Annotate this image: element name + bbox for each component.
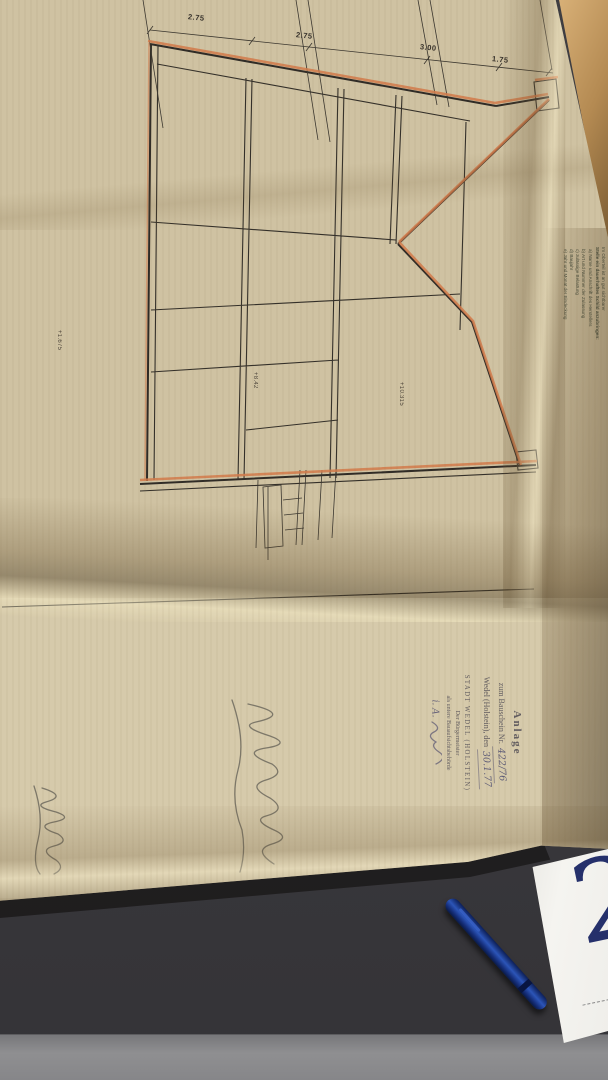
approval-signature: i. A. <box>427 658 442 808</box>
stamp-ref-label: zum Bauschein Nr. <box>498 683 507 744</box>
notes-item: a) Name und Anschrift des Herstellers <box>586 249 592 353</box>
notes-heading: Im Oberteil ist an gut sichtbarer <box>600 247 606 353</box>
card-numeral: 2 <box>562 838 608 962</box>
bauschein-stamp: Anlage zum Bauschein Nr. 422/76 Wedel (H… <box>395 658 525 808</box>
stamp-authority: als untere Bauaufsichtsbehörde <box>444 658 452 808</box>
notes-item: e) Jahr und Monat der Eindeckung <box>562 249 568 353</box>
architect-signature <box>28 782 72 882</box>
stamp-place-label: Wedel (Holstein), den <box>482 677 491 747</box>
photo-of-plan-on-desk: 2.75 2.75 3.00 1.75 +1.675 +8.42 +10.315… <box>0 0 608 1080</box>
dimension-label: 1.75 <box>492 54 509 65</box>
ink-thick <box>140 44 549 484</box>
notes-item: c) zulässige Belastung <box>574 249 580 353</box>
stamp-date-value: 30.1.77 <box>477 749 494 790</box>
fold-crease <box>503 0 565 608</box>
ink-thin <box>143 0 553 560</box>
accent-orange-thin <box>145 43 149 480</box>
elevation-label: +8.42 <box>252 372 258 389</box>
pen-clip <box>458 908 480 932</box>
stamp-ref-value: 422/76 <box>492 745 509 783</box>
dimension-label: 2.75 <box>296 30 313 41</box>
notes-item: b) Art und Nummer der Zulassung <box>580 249 586 353</box>
section-drawing <box>0 0 608 650</box>
stamp-ref-line: zum Bauschein Nr. 422/76 <box>493 658 508 808</box>
fold-crease <box>542 228 608 854</box>
plan-sheet: 2.75 2.75 3.00 1.75 +1.675 +8.42 +10.315… <box>0 0 608 1080</box>
stamp-title: Anlage <box>509 658 526 808</box>
document-card: 2 <box>516 845 608 1045</box>
desk-edge-strip <box>0 1034 608 1080</box>
stamp-authority: STADT WEDEL (HOLSTEIN) <box>461 658 471 808</box>
pen-cap-band <box>517 979 532 993</box>
elevation-label: +10.315 <box>398 382 404 406</box>
accent-orange-lines <box>140 41 558 480</box>
elevation-label: +1.675 <box>56 330 62 350</box>
dimension-label: 2.75 <box>188 12 205 23</box>
stamp-date-line: Wedel (Holstein), den 30.1.77 <box>478 658 493 808</box>
signature-prefix: i. A. <box>430 700 440 718</box>
fold-crease <box>0 498 608 622</box>
notes-item: d) Baujahr <box>568 249 574 353</box>
card-rule <box>582 994 608 1006</box>
notes-heading: Stelle ein dauerhaftes Schild anzubringe… <box>594 247 600 353</box>
ballpoint-pen <box>442 895 550 1012</box>
stamp-authority: Der Bürgermeister <box>452 658 460 808</box>
signature-scribble-icon <box>428 720 442 766</box>
ink-medium <box>2 46 559 607</box>
dimension-label: 3.00 <box>420 42 437 53</box>
client-signature <box>198 690 318 890</box>
fold-crease <box>0 140 608 230</box>
notes-list: Im Oberteil ist an gut sichtbarer Stelle… <box>540 247 606 353</box>
